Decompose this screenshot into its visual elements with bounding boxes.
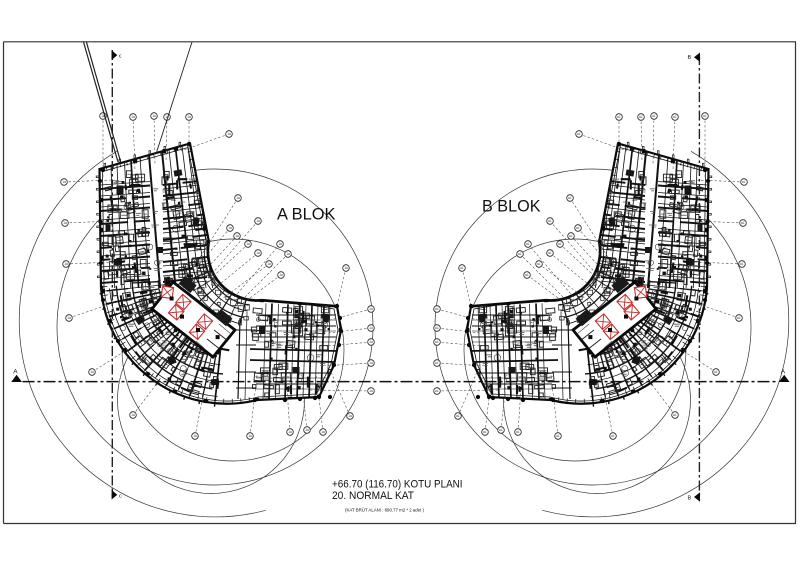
svg-text:1a: 1a (267, 262, 271, 266)
svg-text:1a: 1a (279, 273, 283, 277)
svg-text:1a: 1a (152, 114, 156, 118)
svg-text:c: c (119, 54, 122, 60)
svg-text:1a: 1a (278, 242, 282, 246)
svg-text:1a: 1a (63, 221, 67, 225)
svg-text:A: A (781, 369, 786, 376)
svg-text:1a: 1a (321, 430, 325, 434)
svg-text:1a: 1a (90, 370, 94, 374)
svg-text:1a: 1a (348, 414, 352, 418)
svg-text:A BLOK: A BLOK (277, 205, 336, 224)
svg-text:1a: 1a (246, 242, 250, 246)
svg-text:B BLOK: B BLOK (482, 197, 541, 216)
svg-text:1a: 1a (131, 115, 135, 119)
svg-text:c: c (119, 494, 122, 500)
svg-text:B: B (688, 55, 692, 61)
svg-text:20. NORMAL KAT: 20. NORMAL KAT (332, 490, 414, 502)
svg-text:1a: 1a (256, 251, 260, 255)
svg-text:1a: 1a (344, 266, 348, 270)
svg-text:1a: 1a (369, 389, 373, 393)
svg-text:1a: 1a (305, 428, 309, 432)
svg-text:1a: 1a (193, 434, 197, 438)
svg-text:+66.70 (116.70) KOTU PLANI: +66.70 (116.70) KOTU PLANI (332, 479, 463, 491)
svg-text:1a: 1a (369, 340, 373, 344)
svg-text:1a: 1a (248, 434, 252, 438)
svg-text:(KAT BRÜT ALANI : 890.77 m2 *: (KAT BRÜT ALANI : 890.77 m2 * 2 adet ) (345, 507, 424, 513)
svg-text:1a: 1a (286, 252, 290, 256)
svg-text:1a: 1a (235, 234, 239, 238)
svg-text:1a: 1a (288, 430, 292, 434)
svg-text:1a: 1a (62, 180, 66, 184)
svg-text:1a: 1a (256, 219, 260, 223)
svg-text:1a: 1a (236, 196, 240, 200)
svg-text:A: A (13, 369, 18, 376)
svg-text:1a: 1a (228, 226, 232, 230)
svg-text:1a: 1a (227, 132, 231, 136)
svg-text:B: B (688, 495, 692, 501)
svg-text:1a: 1a (369, 326, 373, 330)
svg-text:1a: 1a (369, 361, 373, 365)
svg-text:1a: 1a (67, 316, 71, 320)
svg-text:1a: 1a (187, 115, 191, 119)
svg-text:1a: 1a (64, 262, 68, 266)
svg-text:1a: 1a (369, 307, 373, 311)
svg-text:1a: 1a (131, 413, 135, 417)
